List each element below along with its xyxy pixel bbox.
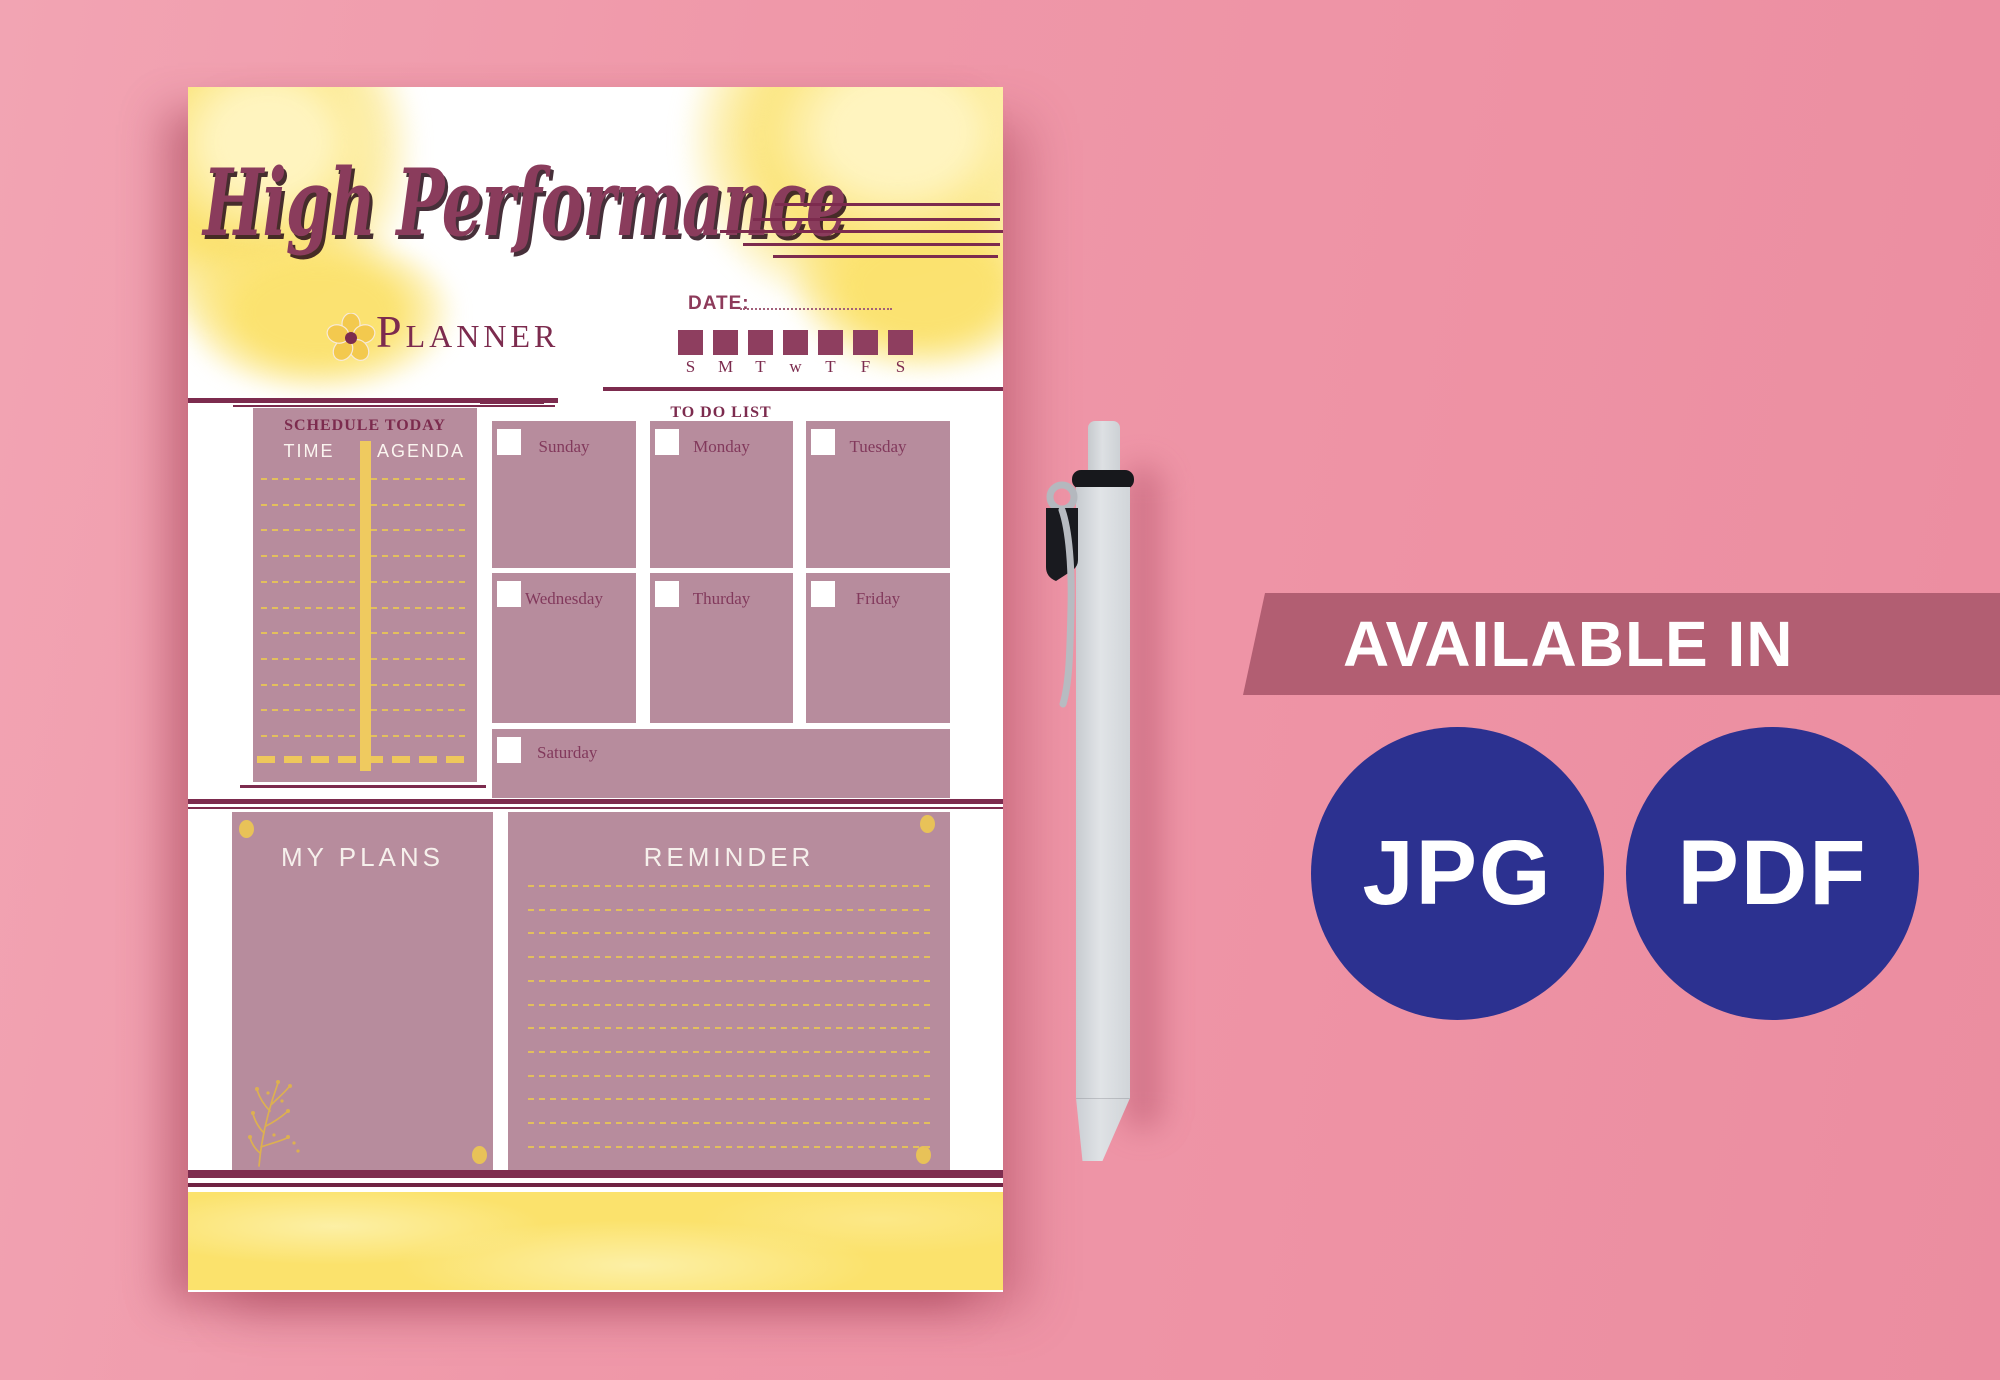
- reminder-panel: REMINDER: [508, 812, 950, 1170]
- pen-body: [1076, 487, 1130, 1099]
- day-label: Thurday: [650, 589, 793, 609]
- week-day-letter: M: [713, 358, 738, 375]
- separator-line: [603, 387, 1003, 391]
- format-badge-jpg-label: JPG: [1362, 821, 1552, 926]
- separator-line: [188, 799, 1003, 804]
- date-fill-line: [740, 308, 892, 310]
- pen-plunger: [1088, 421, 1120, 477]
- format-badge-jpg: JPG: [1311, 727, 1604, 1020]
- week-day-cell: w: [783, 330, 808, 375]
- week-day-box: [678, 330, 703, 355]
- pen-clip: [1038, 468, 1084, 718]
- decorative-line: [753, 218, 1000, 221]
- week-day-letter: S: [888, 358, 913, 375]
- schedule-panel: SCHEDULE TODAY TIME AGENDA: [253, 408, 477, 782]
- ruled-dash-line: [528, 1098, 930, 1100]
- ruled-dash-line: [528, 1075, 930, 1077]
- week-day-cell: M: [713, 330, 738, 375]
- day-label: Sunday: [492, 437, 636, 457]
- format-badge-pdf-label: PDF: [1678, 821, 1868, 926]
- page-subtitle: Planner: [376, 309, 559, 355]
- week-day-letter: w: [783, 358, 808, 375]
- corner-dot: [916, 1146, 931, 1164]
- todo-day-box-tuesday: Tuesday: [806, 421, 950, 568]
- date-label: DATE:: [688, 293, 750, 314]
- time-header: TIME: [253, 441, 365, 462]
- week-day-cell: F: [853, 330, 878, 375]
- ruled-dash-line: [528, 1027, 930, 1029]
- my-plans-panel: MY PLANS: [232, 812, 493, 1170]
- week-day-box: [748, 330, 773, 355]
- day-label: Wednesday: [492, 589, 636, 609]
- todo-day-box-monday: Monday: [650, 421, 793, 568]
- corner-dot: [472, 1146, 487, 1164]
- week-day-cell: S: [678, 330, 703, 375]
- week-day-cell: T: [818, 330, 843, 375]
- stage: High Performance Planner DATE: S M: [0, 0, 2000, 1380]
- week-day-letter: F: [853, 358, 878, 375]
- week-day-box: [818, 330, 843, 355]
- day-checkbox: [497, 737, 521, 763]
- ruled-dash-line: [528, 1146, 930, 1148]
- ruled-dash-line: [528, 956, 930, 958]
- week-day-box: [783, 330, 808, 355]
- schedule-underline: [240, 785, 486, 788]
- banner-label: AVAILABLE IN: [1343, 593, 1794, 695]
- reminder-title: REMINDER: [508, 842, 950, 873]
- ruled-dash-line: [528, 909, 930, 911]
- todo-title: TO DO LIST: [492, 404, 950, 422]
- week-day-cell: T: [748, 330, 773, 375]
- watercolor-bottom-strip: [188, 1192, 1003, 1290]
- ruled-dash-line: [528, 980, 930, 982]
- week-day-box: [888, 330, 913, 355]
- ruled-dash-line: [528, 1122, 930, 1124]
- schedule-divider-bar: [360, 441, 371, 771]
- decorative-line: [720, 230, 1003, 233]
- day-label: Monday: [650, 437, 793, 457]
- decorative-line: [775, 203, 1000, 206]
- bottom-line: [188, 1183, 1003, 1187]
- week-day-cell: S: [888, 330, 913, 375]
- ruled-dash-line: [528, 932, 930, 934]
- page-title: High Performance: [203, 149, 723, 258]
- pen-tip: [1076, 1098, 1130, 1161]
- week-day-box: [713, 330, 738, 355]
- week-day-letter: T: [748, 358, 773, 375]
- my-plans-title: MY PLANS: [232, 842, 493, 873]
- corner-dot: [239, 820, 254, 838]
- decorative-line: [773, 255, 998, 258]
- todo-day-box-sunday: Sunday: [492, 421, 636, 568]
- todo-day-box-saturday: Saturday: [492, 729, 950, 798]
- day-label: Saturday: [537, 743, 597, 763]
- date-row: DATE:: [688, 293, 750, 315]
- week-day-letter: T: [818, 358, 843, 375]
- separator-line: [188, 807, 1003, 809]
- ruled-dash-line: [528, 885, 930, 887]
- ruled-dash-line: [528, 1051, 930, 1053]
- week-day-box: [853, 330, 878, 355]
- flower-icon: [326, 313, 376, 363]
- day-label: Friday: [806, 589, 950, 609]
- format-badge-pdf: PDF: [1626, 727, 1919, 1020]
- todo-day-box-wednesday: Wednesday: [492, 573, 636, 723]
- week-tracker: S M T w T F S: [678, 330, 913, 375]
- agenda-header: AGENDA: [365, 441, 477, 462]
- available-in-banner: AVAILABLE IN: [1243, 593, 2000, 695]
- bottom-bar: [188, 1170, 1003, 1178]
- sprig-icon: [246, 1071, 308, 1167]
- corner-dot: [920, 815, 935, 833]
- schedule-title: SCHEDULE TODAY: [253, 417, 477, 435]
- week-day-letter: S: [678, 358, 703, 375]
- planner-page: High Performance Planner DATE: S M: [188, 87, 1003, 1292]
- todo-day-box-friday: Friday: [806, 573, 950, 723]
- day-label: Tuesday: [806, 437, 950, 457]
- todo-day-box-thurday: Thurday: [650, 573, 793, 723]
- decorative-line: [743, 243, 1000, 246]
- ruled-dash-line: [528, 1004, 930, 1006]
